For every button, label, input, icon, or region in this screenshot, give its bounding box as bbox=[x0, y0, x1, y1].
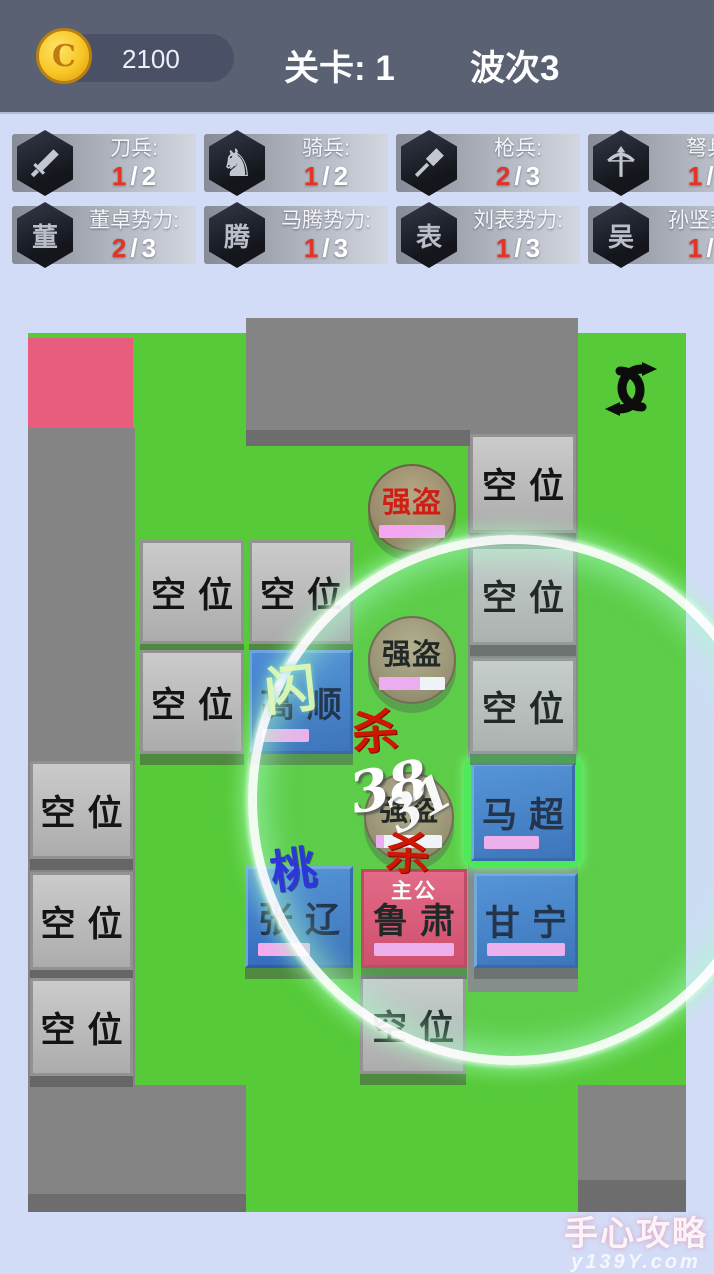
faction-badge-sunjian: 吴 孙坚势力 1/2 bbox=[588, 206, 714, 264]
badge-label: 马腾势力: bbox=[268, 208, 384, 234]
empty-slot-tile[interactable]: 空位 bbox=[30, 978, 133, 1076]
badge-current: 1 bbox=[688, 161, 702, 191]
refresh-icon bbox=[592, 360, 670, 418]
wave-indicator: 波次3 bbox=[470, 40, 559, 91]
bandit-enemy: 强盗 bbox=[364, 772, 454, 862]
level-indicator: 关卡: 1 bbox=[284, 40, 395, 91]
bandit-hp-bar bbox=[379, 677, 445, 690]
crossbow-icon bbox=[604, 146, 638, 180]
hero-tile-zhangliao[interactable]: 张辽 bbox=[245, 866, 353, 968]
path-top-shadow bbox=[246, 430, 470, 446]
path-bottom-right-shadow bbox=[578, 1180, 686, 1212]
bandit-label: 强盗 bbox=[366, 787, 452, 829]
unit-badge-cavalry: ♞ 骑兵: 1/2 bbox=[204, 134, 388, 192]
hero-tile-gaoshun[interactable]: 高顺 bbox=[249, 650, 353, 754]
badge-max: 3 bbox=[334, 233, 348, 263]
badge-count: 1/2 bbox=[652, 234, 714, 262]
bandit-label: 强盗 bbox=[370, 631, 454, 673]
hp-bar bbox=[258, 943, 310, 956]
empty-slot-label: 空位 bbox=[482, 681, 576, 732]
badge-separator: / bbox=[706, 161, 713, 191]
refresh-button[interactable] bbox=[592, 360, 670, 423]
badge-max: 3 bbox=[142, 233, 156, 263]
unit-badge-crossbow: 弩兵: 1/2 bbox=[588, 134, 714, 192]
badge-label: 孙坚势力 bbox=[652, 208, 714, 234]
hp-bar bbox=[262, 729, 309, 742]
empty-slot-label: 空位 bbox=[260, 567, 354, 618]
empty-slot-label: 空位 bbox=[41, 785, 135, 836]
coin-count: 2100 bbox=[122, 44, 180, 75]
bandit-enemy: 强盗 bbox=[368, 616, 456, 704]
badge-current: 1 bbox=[304, 233, 318, 263]
empty-slot-label: 空位 bbox=[151, 567, 245, 618]
path-bottom-left-shadow bbox=[28, 1194, 246, 1212]
empty-slot-tile[interactable]: 空位 bbox=[470, 546, 576, 645]
bandit-label: 强盗 bbox=[370, 479, 454, 521]
empty-slot-label: 空位 bbox=[482, 458, 576, 509]
badge-count: 2/3 bbox=[76, 234, 192, 262]
game-screen: C 2100 关卡: 1 波次3 刀兵: 1/2 ♞ 骑兵: 1/2 bbox=[0, 0, 714, 1274]
badge-count: 1/2 bbox=[652, 162, 714, 190]
bandit-hp-fill bbox=[379, 677, 420, 690]
empty-slot-label: 空位 bbox=[41, 896, 135, 947]
badge-label: 骑兵: bbox=[268, 136, 384, 162]
hero-name: 张辽 bbox=[258, 892, 352, 943]
path-top-block bbox=[246, 318, 578, 446]
watermark-title: 手心攻略 bbox=[564, 1206, 708, 1255]
wu-glyph-icon: 吴 bbox=[608, 217, 634, 254]
sword-icon bbox=[28, 146, 62, 180]
empty-slot-tile[interactable]: 空位 bbox=[249, 540, 353, 644]
site-watermark: 手心攻略 y139Y.com bbox=[564, 1206, 708, 1274]
badge-max: 3 bbox=[526, 233, 540, 263]
hero-name: 甘宁 bbox=[485, 895, 579, 946]
selected-tile-glow: 马超 bbox=[464, 756, 582, 868]
empty-slot-label: 空位 bbox=[482, 570, 576, 621]
badge-current: 1 bbox=[688, 233, 702, 263]
hero-name: 马超 bbox=[482, 787, 576, 838]
faction-badge-liubiao: 表 刘表势力: 1/3 bbox=[396, 206, 580, 264]
hero-tile-machao[interactable]: 马超 bbox=[471, 763, 575, 861]
badge-label: 刀兵: bbox=[76, 136, 192, 162]
teng-glyph-icon: 腾 bbox=[224, 217, 250, 254]
empty-slot-tile[interactable]: 空位 bbox=[30, 761, 133, 859]
badge-count: 1/3 bbox=[268, 234, 384, 262]
badge-count: 2/3 bbox=[460, 162, 576, 190]
badge-separator: / bbox=[514, 233, 521, 263]
badge-separator: / bbox=[706, 233, 713, 263]
bandit-hp-bar bbox=[376, 835, 442, 848]
hp-bar bbox=[487, 943, 565, 956]
badge-separator: / bbox=[322, 233, 329, 263]
badge-label: 刘表势力: bbox=[460, 208, 576, 234]
faction-badge-mateng: 腾 马腾势力: 1/3 bbox=[204, 206, 388, 264]
path-bottom-left-block bbox=[28, 1085, 246, 1212]
badge-current: 1 bbox=[304, 161, 318, 191]
hero-tile-ganning[interactable]: 甘宁 bbox=[474, 873, 578, 968]
badge-max: 2 bbox=[142, 161, 156, 191]
unit-badge-blade: 刀兵: 1/2 bbox=[12, 134, 196, 192]
empty-slot-label: 空位 bbox=[41, 1002, 135, 1053]
bandit-hp-bar bbox=[379, 525, 445, 538]
watermark-url: y139Y.com bbox=[564, 1251, 708, 1274]
hero-tile-lusu-lord[interactable]: 主公 鲁肃 bbox=[361, 869, 467, 968]
empty-slot-tile[interactable]: 空位 bbox=[140, 650, 244, 754]
spawn-zone bbox=[28, 338, 133, 428]
badge-separator: / bbox=[130, 233, 137, 263]
empty-slot-tile[interactable]: 空位 bbox=[30, 872, 133, 970]
badge-label: 董卓势力: bbox=[76, 208, 192, 234]
badge-separator: / bbox=[322, 161, 329, 191]
badge-current: 2 bbox=[112, 233, 126, 263]
badge-count: 1/2 bbox=[76, 162, 192, 190]
badge-label: 枪兵: bbox=[460, 136, 576, 162]
badge-max: 3 bbox=[526, 161, 540, 191]
badge-count: 1/2 bbox=[268, 162, 384, 190]
hp-bar bbox=[484, 836, 539, 849]
empty-slot-label: 空位 bbox=[151, 677, 245, 728]
empty-slot-tile[interactable]: 空位 bbox=[360, 976, 466, 1074]
top-bar: C 2100 关卡: 1 波次3 bbox=[0, 0, 714, 112]
badge-count: 1/3 bbox=[460, 234, 576, 262]
hero-name: 高顺 bbox=[260, 677, 354, 728]
bandit-enemy: 强盗 bbox=[368, 464, 456, 552]
badge-current: 2 bbox=[496, 161, 510, 191]
empty-slot-tile[interactable]: 空位 bbox=[470, 434, 576, 533]
bandit-hp-fill bbox=[376, 835, 384, 848]
unit-badge-spear: 枪兵: 2/3 bbox=[396, 134, 580, 192]
biao-glyph-icon: 表 bbox=[416, 217, 442, 254]
dong-glyph-icon: 董 bbox=[32, 217, 58, 254]
hp-bar bbox=[374, 943, 454, 956]
spear-icon bbox=[412, 146, 446, 180]
empty-slot-tile[interactable]: 空位 bbox=[470, 658, 576, 754]
empty-slot-tile[interactable]: 空位 bbox=[140, 540, 244, 644]
badge-current: 1 bbox=[496, 233, 510, 263]
badge-max: 2 bbox=[334, 161, 348, 191]
empty-slot-label: 空位 bbox=[372, 1000, 466, 1051]
badge-separator: / bbox=[130, 161, 137, 191]
coin-icon: C bbox=[36, 28, 92, 84]
bandit-hp-fill bbox=[379, 525, 445, 538]
horse-icon: ♞ bbox=[220, 144, 254, 182]
lord-tag: 主公 bbox=[364, 875, 464, 905]
faction-badge-dongzhuo: 董 董卓势力: 2/3 bbox=[12, 206, 196, 264]
badge-label: 弩兵: bbox=[652, 136, 714, 162]
badge-separator: / bbox=[514, 161, 521, 191]
badge-current: 1 bbox=[112, 161, 126, 191]
